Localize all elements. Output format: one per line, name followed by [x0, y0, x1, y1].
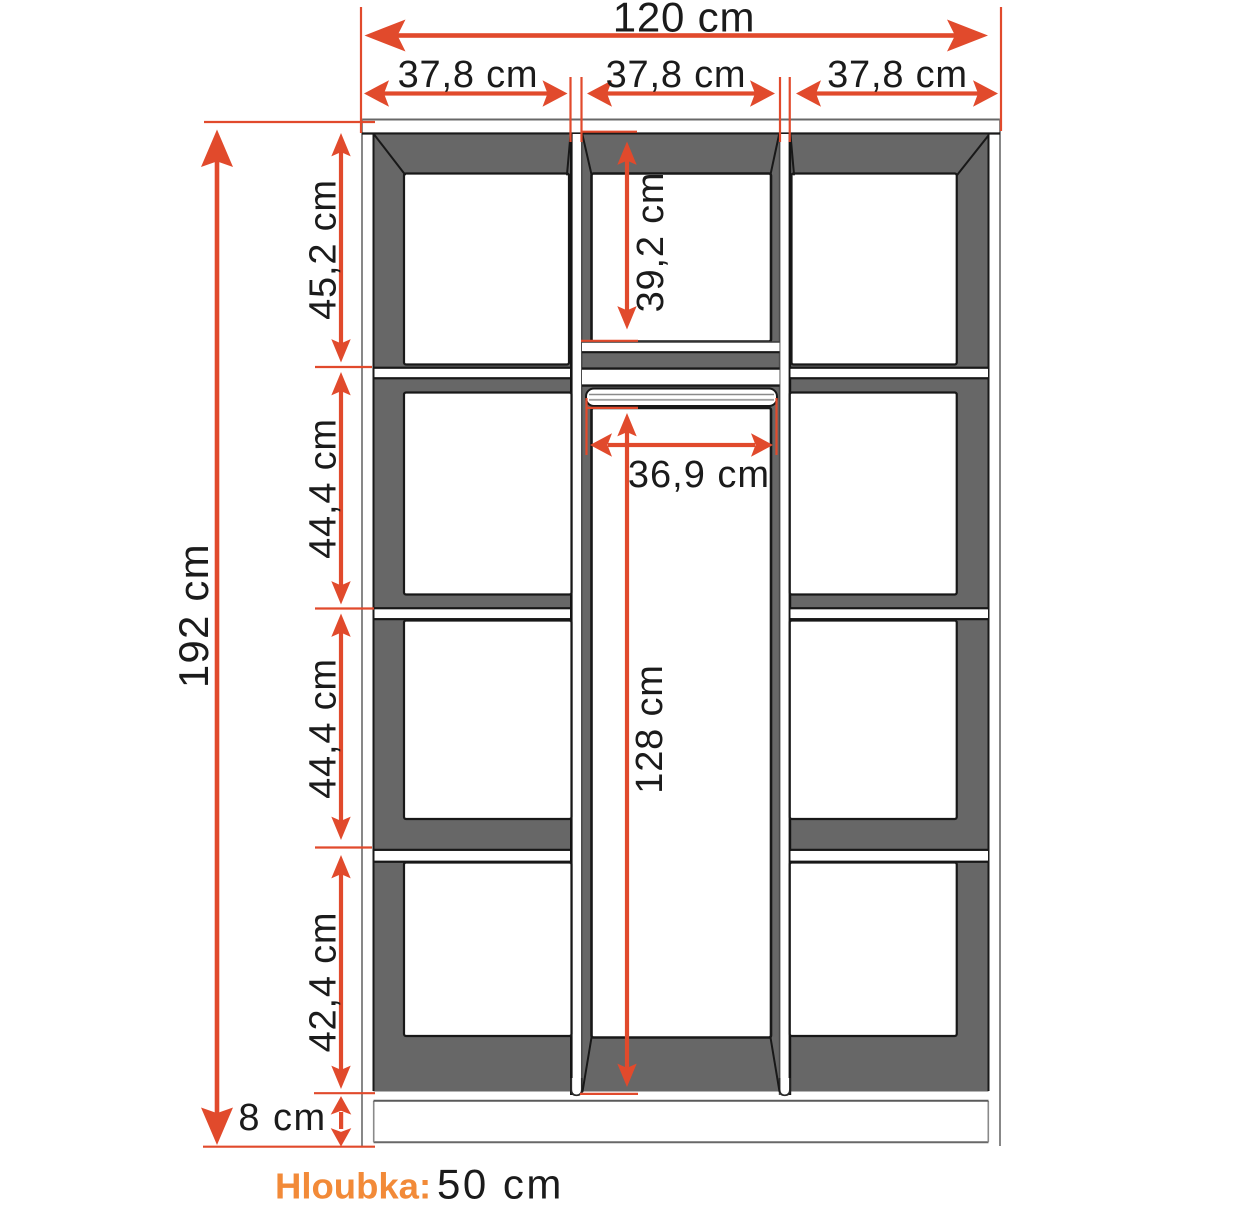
svg-text:128 cm: 128 cm — [629, 664, 671, 793]
svg-text:Hloubka:: Hloubka: — [275, 1166, 431, 1207]
svg-text:36,9 cm: 36,9 cm — [628, 454, 770, 496]
svg-text:39,2 cm: 39,2 cm — [630, 172, 672, 313]
svg-text:42,4 cm: 42,4 cm — [303, 912, 345, 1053]
svg-text:8 cm: 8 cm — [238, 1097, 326, 1139]
svg-text:37,8 cm: 37,8 cm — [398, 54, 539, 96]
svg-text:44,4 cm: 44,4 cm — [303, 658, 345, 799]
svg-text:192 cm: 192 cm — [170, 543, 217, 688]
svg-text:37,8 cm: 37,8 cm — [606, 54, 747, 96]
svg-text:120 cm: 120 cm — [613, 0, 756, 41]
svg-text:37,8 cm: 37,8 cm — [827, 54, 968, 96]
svg-text:45,2 cm: 45,2 cm — [303, 179, 345, 320]
svg-text:50 cm: 50 cm — [437, 1161, 564, 1208]
svg-text:44,4 cm: 44,4 cm — [303, 418, 345, 559]
